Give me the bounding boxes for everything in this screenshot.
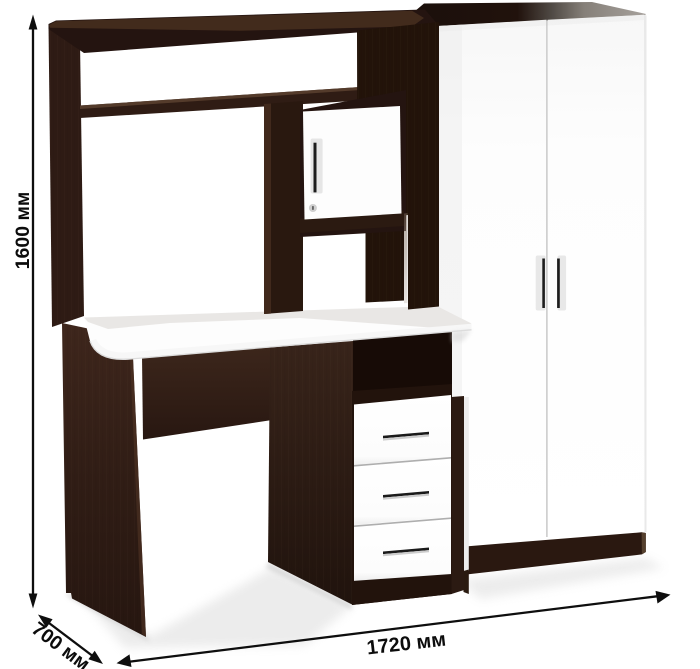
svg-text:1600 мм: 1600 мм xyxy=(12,192,34,270)
